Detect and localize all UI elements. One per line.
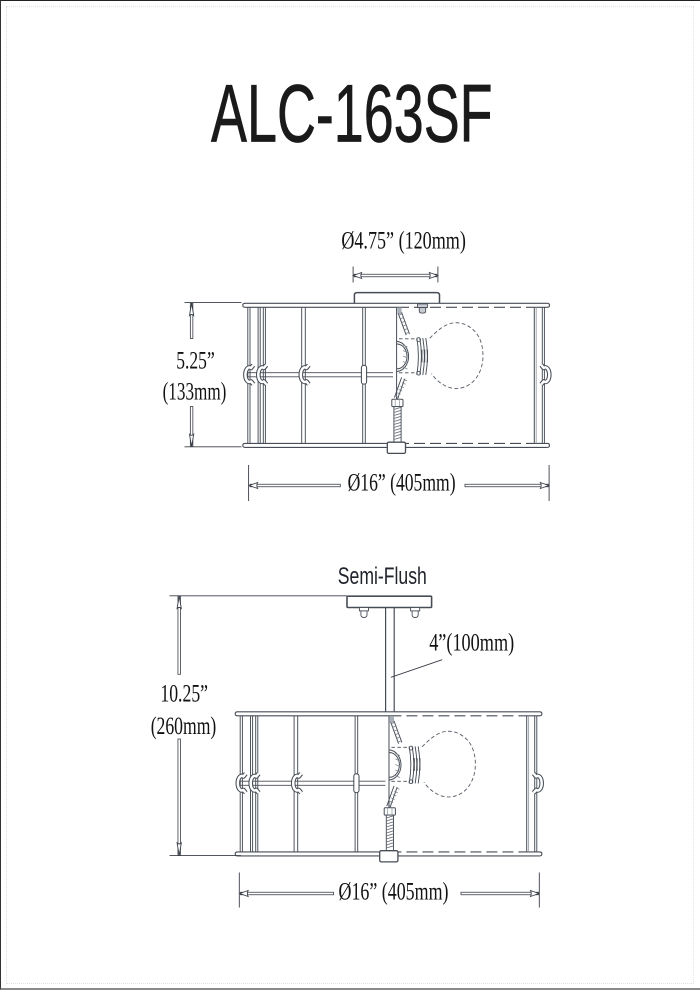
svg-text:ALC-163SF: ALC-163SF [211, 68, 493, 159]
svg-text:10.25”: 10.25” [160, 681, 208, 708]
svg-text:Ø4.75” (120mm): Ø4.75” (120mm) [341, 228, 466, 255]
svg-text:(260mm): (260mm) [151, 713, 217, 740]
svg-text:4”(100mm): 4”(100mm) [429, 630, 514, 657]
svg-text:5.25”: 5.25” [176, 348, 215, 375]
svg-text:Ø16” (405mm): Ø16” (405mm) [348, 470, 456, 497]
svg-text:Semi-Flush: Semi-Flush [338, 563, 427, 590]
svg-text:Ø16” (405mm): Ø16” (405mm) [339, 879, 449, 906]
svg-text:(133mm): (133mm) [163, 379, 227, 406]
